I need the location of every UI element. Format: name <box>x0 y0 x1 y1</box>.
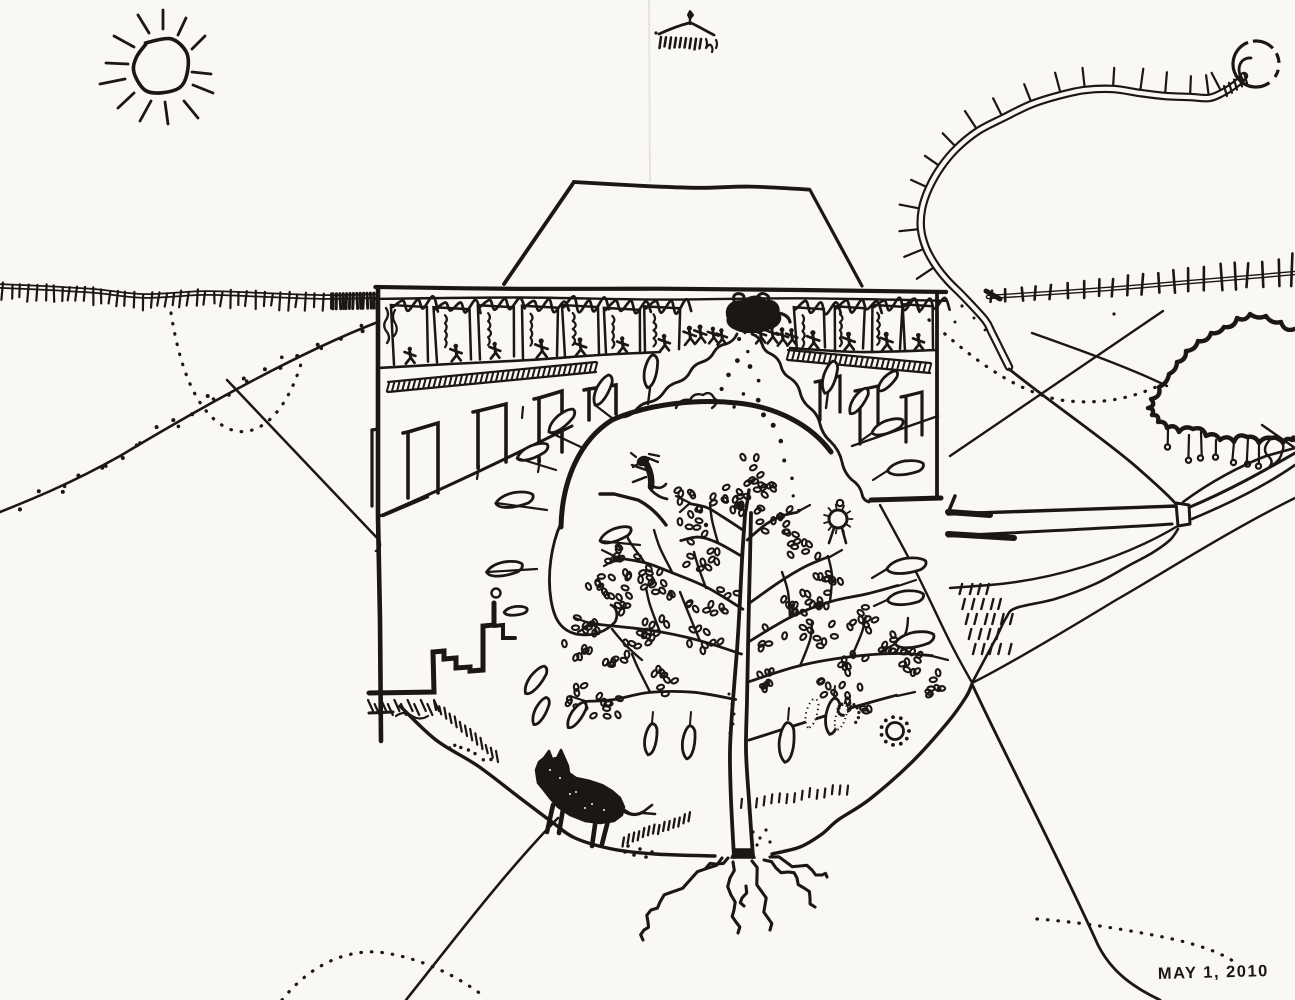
svg-text:MAY 1, 2010: MAY 1, 2010 <box>1158 962 1269 983</box>
